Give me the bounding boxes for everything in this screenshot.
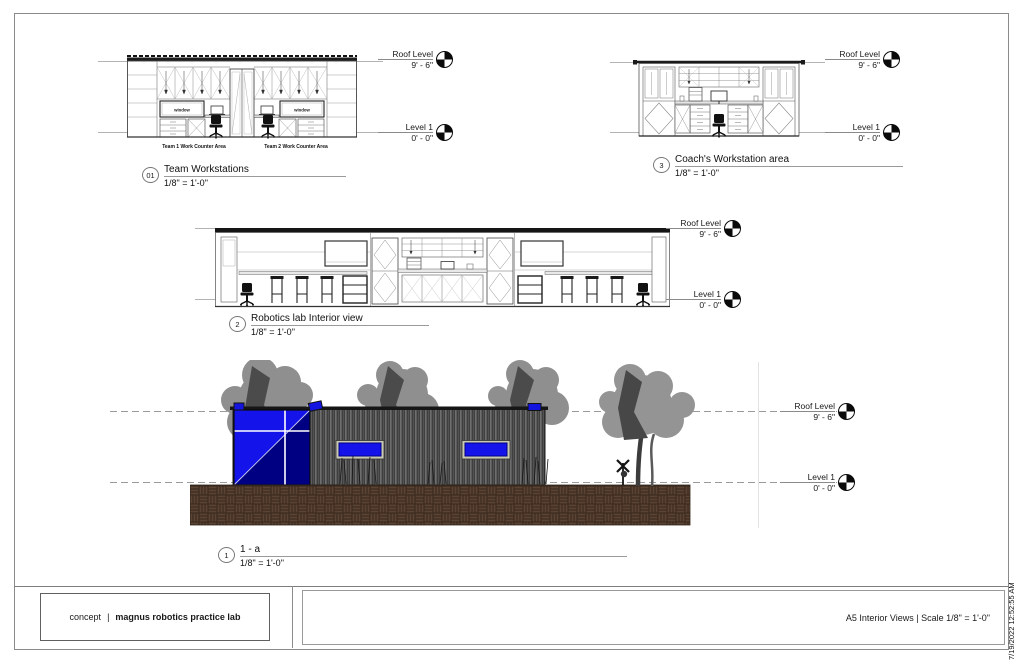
print-timestamp: 7/19/2022 12:52:55 AM [1007,552,1021,660]
level-elevation: 9' - 6" [666,229,721,239]
view-title-team: 01 Team Workstations 1/8" = 1'-0" [142,163,346,189]
drawing-sheet: window window [0,0,1024,663]
view-scale-text: 1/8" = 1'-0" [251,326,429,338]
view-number-bubble[interactable]: 1 [218,547,235,563]
roof-light-3 [528,404,541,411]
level-elevation: 9' - 6" [780,412,835,422]
level-marker-l1-exterior: Level 1 0' - 0" [780,472,855,493]
view-title-lab: 2 Robotics lab Interior view 1/8" = 1'-0… [229,312,429,338]
level-marker-l1-team: Level 1 0' - 0" [378,122,453,143]
level-elevation: 0' - 0" [378,133,433,143]
level-marker-roof-team: Roof Level 9' - 6" [378,49,453,70]
view-title-text: 1 - a [240,543,627,557]
level-marker-roof-coach: Roof Level 9' - 6" [825,49,900,70]
level-head-icon [724,291,741,308]
view-robotics-lab-interior[interactable] [215,228,670,312]
level-elevation: 9' - 6" [378,60,433,70]
team1-counter-label: Team 1 Work Counter Area [154,144,234,150]
view-scale-text: 1/8" = 1'-0" [675,167,903,179]
view-number-bubble[interactable]: 2 [229,316,246,332]
roof-light-1 [234,403,244,410]
window-right: window [280,101,324,117]
level-marker-l1-lab: Level 1 0' - 0" [666,289,741,310]
view-scale-text: 1/8" = 1'-0" [240,557,627,569]
level-elevation: 0' - 0" [825,133,880,143]
team2-counter-label: Team 2 Work Counter Area [256,144,336,150]
brick-ground [190,485,690,525]
view-number-bubble[interactable]: 3 [653,157,670,173]
view-number-bubble[interactable]: 01 [142,167,159,183]
building [230,401,548,485]
double-door [230,69,254,137]
level-head-icon [838,474,855,491]
titleblock-project: concept | magnus robotics practice lab [40,593,270,641]
window-strip-left [336,441,384,460]
guide-line [758,362,759,528]
yard-figure [617,460,629,485]
level-head-icon [724,220,741,237]
level-name: Level 1 [780,472,835,483]
svg-text:window: window [173,108,190,113]
view-title-text: Robotics lab Interior view [251,312,429,326]
level-head-icon [436,51,453,68]
glass-entry-door [234,410,310,485]
level-name: Level 1 [378,122,433,133]
window-left: window [160,101,204,117]
view-team-workstations[interactable]: window window [127,55,357,142]
window-strip-right [462,441,510,460]
level-marker-l1-coach: Level 1 0' - 0" [825,122,900,143]
level-marker-roof-exterior: Roof Level 9' - 6" [780,401,855,422]
separator: | [107,612,109,622]
view-title-coach: 3 Coach's Workstation area 1/8" = 1'-0" [653,153,903,179]
level-name: Roof Level [780,401,835,412]
level-marker-roof-lab: Roof Level 9' - 6" [666,218,741,239]
level-name: Roof Level [378,49,433,60]
view-title-text: Team Workstations [164,163,346,177]
svg-text:window: window [293,108,310,113]
sheet-info-text: A5 Interior Views | Scale 1/8" = 1'-0" [846,613,990,623]
level-name: Level 1 [825,122,880,133]
level-elevation: 0' - 0" [666,300,721,310]
view-title-text: Coach's Workstation area [675,153,903,167]
titleblock-divider-top [14,586,1009,587]
tree-right-front [599,364,695,486]
view-title-exterior: 1 1 - a 1/8" = 1'-0" [218,543,627,569]
level-name: Roof Level [666,218,721,229]
view-coach-workstation[interactable] [633,55,805,147]
titleblock-divider-vertical [292,586,293,648]
project-name: magnus robotics practice lab [115,612,240,622]
level-head-icon [436,124,453,141]
level-head-icon [883,51,900,68]
project-phase: concept [70,612,102,622]
level-name: Level 1 [666,289,721,300]
view-scale-text: 1/8" = 1'-0" [164,177,346,189]
level-head-icon [838,403,855,420]
level-head-icon [883,124,900,141]
titleblock-sheet-info: A5 Interior Views | Scale 1/8" = 1'-0" [302,590,1005,645]
level-name: Roof Level [825,49,880,60]
level-elevation: 0' - 0" [780,483,835,493]
level-elevation: 9' - 6" [825,60,880,70]
view-exterior-elevation[interactable] [190,360,700,528]
